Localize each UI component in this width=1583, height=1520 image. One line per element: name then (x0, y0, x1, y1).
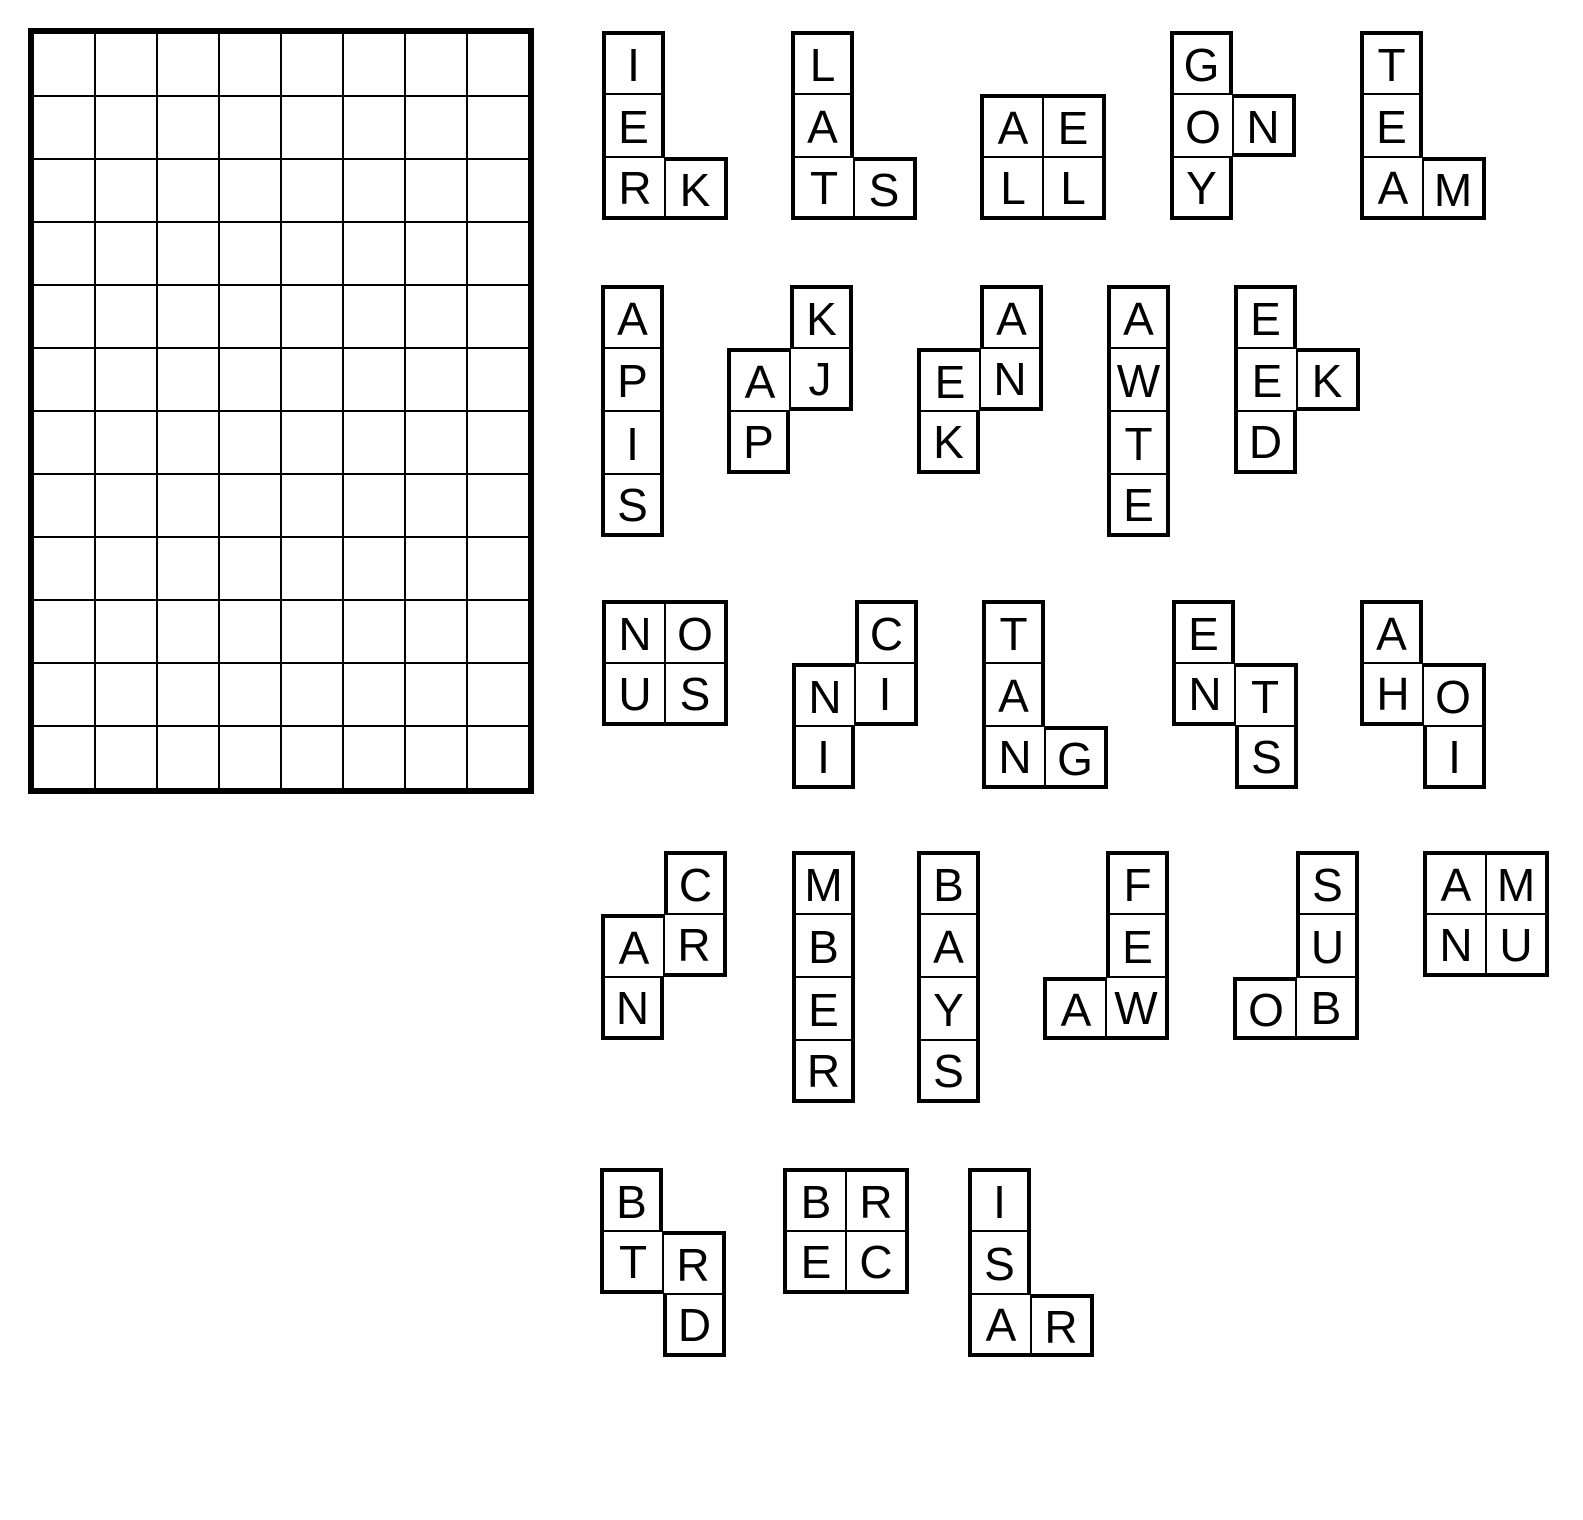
grid-cell[interactable] (467, 348, 529, 411)
piece-letter: G (1184, 42, 1220, 88)
grid-cell[interactable] (405, 96, 467, 159)
piece-feaw-cell[interactable]: A (1043, 977, 1106, 1040)
grid-cell[interactable] (467, 726, 529, 789)
piece-btrd-cell[interactable]: B (600, 1168, 663, 1231)
piece-letter: T (810, 165, 838, 211)
piece-letter: K (1312, 358, 1343, 404)
piece-letter: S (933, 1048, 964, 1094)
grid-cell[interactable] (281, 159, 343, 222)
piece-letter: E (801, 1239, 832, 1285)
grid-cell[interactable] (281, 726, 343, 789)
piece-letter: U (1499, 922, 1532, 968)
piece-btrd-cell[interactable]: T (600, 1231, 663, 1294)
grid-cell[interactable] (95, 411, 157, 474)
piece-letter: E (618, 104, 649, 150)
piece-isar-cell[interactable]: I (968, 1168, 1031, 1231)
piece-letter: B (1311, 985, 1342, 1031)
grid-cell[interactable] (281, 348, 343, 411)
piece-letter: S (617, 482, 648, 528)
piece-team-cell[interactable]: M (1423, 157, 1486, 220)
piece-eekd-cell[interactable]: D (1234, 411, 1297, 474)
piece-aell-cell[interactable]: L (1043, 157, 1106, 220)
piece-letter: N (808, 674, 841, 720)
grid-cell[interactable] (219, 285, 281, 348)
piece-letter: E (1058, 105, 1089, 151)
grid-cell[interactable] (157, 600, 219, 663)
grid-cell[interactable] (33, 222, 95, 285)
grid-cell[interactable] (33, 96, 95, 159)
grid-cell[interactable] (95, 222, 157, 285)
piece-letter: C (679, 862, 712, 908)
piece-letter: N (1188, 671, 1221, 717)
grid-cell[interactable] (33, 33, 95, 96)
piece-letter: P (617, 358, 648, 404)
piece-letter: E (1376, 104, 1407, 150)
piece-letter: I (817, 734, 830, 780)
piece-letter: R (1044, 1304, 1077, 1350)
piece-letter: O (1248, 987, 1284, 1033)
piece-letter: P (743, 419, 774, 465)
piece-btrd-cell[interactable]: D (663, 1294, 726, 1357)
piece-letter: N (1439, 922, 1472, 968)
grid-cell[interactable] (219, 411, 281, 474)
piece-letter: L (810, 42, 836, 88)
piece-letter: C (870, 611, 903, 657)
piece-letter: O (1435, 674, 1471, 720)
grid-cell[interactable] (157, 411, 219, 474)
grid-cell[interactable] (219, 537, 281, 600)
piece-aenk-cell[interactable]: A (980, 285, 1043, 348)
piece-eekd-cell[interactable]: K (1297, 348, 1360, 411)
grid-cell[interactable] (405, 600, 467, 663)
grid-cell[interactable] (95, 96, 157, 159)
piece-letter: U (1311, 924, 1344, 970)
piece-team-cell[interactable]: A (1360, 157, 1423, 220)
grid-cell[interactable] (343, 474, 405, 537)
piece-letter: E (1188, 611, 1219, 657)
piece-feaw-cell[interactable]: F (1106, 851, 1169, 914)
piece-kajp-cell[interactable]: P (727, 411, 790, 474)
piece-letter: K (933, 419, 964, 465)
piece-nous-cell[interactable]: S (665, 663, 728, 726)
piece-suob-cell[interactable]: S (1296, 851, 1359, 914)
piece-apis-cell[interactable]: P (601, 348, 664, 411)
piece-awte-cell[interactable]: A (1107, 285, 1170, 348)
grid-cell[interactable] (281, 600, 343, 663)
grid-cell[interactable] (33, 285, 95, 348)
piece-letter: R (618, 165, 651, 211)
piece-letter: E (1252, 358, 1283, 404)
piece-carn-cell[interactable]: C (664, 851, 727, 914)
piece-bays-cell[interactable]: Y (917, 977, 980, 1040)
grid-cell[interactable] (405, 474, 467, 537)
piece-letter: K (806, 296, 837, 342)
piece-lats-cell[interactable]: A (791, 94, 854, 157)
piece-letter: M (804, 862, 842, 908)
piece-aenk-cell[interactable]: E (917, 348, 980, 411)
piece-letter: L (1000, 165, 1026, 211)
piece-letter: J (809, 356, 832, 402)
grid-cell[interactable] (219, 348, 281, 411)
grid-cell[interactable] (467, 663, 529, 726)
grid-cell[interactable] (95, 537, 157, 600)
piece-apis-cell[interactable]: S (601, 474, 664, 537)
piece-ents-cell[interactable]: E (1172, 600, 1235, 663)
grid-cell[interactable] (343, 663, 405, 726)
piece-carn-cell[interactable]: R (664, 914, 727, 977)
grid-cell[interactable] (281, 222, 343, 285)
piece-letter: A (745, 359, 776, 405)
piece-letter: A (933, 924, 964, 970)
grid-cell[interactable] (95, 726, 157, 789)
grid-cell[interactable] (467, 222, 529, 285)
piece-letter: T (1377, 42, 1405, 88)
piece-cnii-cell[interactable]: I (792, 726, 855, 789)
piece-letter: M (1434, 167, 1472, 213)
piece-isar-cell[interactable]: R (1031, 1294, 1094, 1357)
grid-cell[interactable] (281, 663, 343, 726)
piece-gony-cell[interactable]: O (1170, 94, 1233, 157)
piece-awte-cell[interactable]: W (1107, 348, 1170, 411)
piece-letter: A (1123, 296, 1154, 342)
piece-brec-cell[interactable]: C (846, 1231, 909, 1294)
grid-cell[interactable] (467, 159, 529, 222)
grid-cell[interactable] (219, 474, 281, 537)
piece-bays-cell[interactable]: A (917, 914, 980, 977)
piece-letter: A (619, 925, 650, 971)
grid-cell[interactable] (281, 33, 343, 96)
grid-cell[interactable] (405, 663, 467, 726)
piece-letter: G (1057, 736, 1093, 782)
grid-cell[interactable] (467, 537, 529, 600)
grid-cell[interactable] (219, 159, 281, 222)
piece-letter: E (1122, 924, 1153, 970)
piece-btrd-cell[interactable]: R (663, 1231, 726, 1294)
piece-letter: R (677, 922, 710, 968)
piece-lats-cell[interactable]: L (791, 31, 854, 94)
piece-nous-cell[interactable]: N (602, 600, 665, 663)
grid-cell[interactable] (343, 537, 405, 600)
piece-suob-cell[interactable]: B (1296, 977, 1359, 1040)
piece-letter: A (998, 673, 1029, 719)
grid-cell[interactable] (157, 474, 219, 537)
grid-cell[interactable] (157, 537, 219, 600)
piece-tang-cell[interactable]: A (982, 663, 1045, 726)
piece-letter: F (1123, 862, 1151, 908)
piece-gony-cell[interactable]: G (1170, 31, 1233, 94)
piece-letter: A (1061, 987, 1092, 1033)
piece-letter: T (619, 1239, 647, 1285)
piece-mber-cell[interactable]: R (792, 1040, 855, 1103)
piece-letter: N (618, 611, 651, 657)
piece-brec-cell[interactable]: R (846, 1168, 909, 1231)
piece-letter: L (1060, 165, 1086, 211)
grid-cell[interactable] (157, 726, 219, 789)
grid-cell[interactable] (343, 348, 405, 411)
grid-cell[interactable] (281, 474, 343, 537)
piece-letter: A (996, 296, 1027, 342)
piece-letter: R (859, 1179, 892, 1225)
grid-cell[interactable] (405, 537, 467, 600)
grid-cell[interactable] (33, 537, 95, 600)
piece-letter: D (678, 1302, 711, 1348)
piece-brec-cell[interactable]: B (783, 1168, 846, 1231)
piece-letter: W (1114, 985, 1157, 1031)
piece-lats-cell[interactable]: S (854, 157, 917, 220)
grid-cell[interactable] (467, 600, 529, 663)
piece-letter: N (616, 985, 649, 1031)
piece-letter: M (1497, 862, 1535, 908)
piece-nous-cell[interactable]: O (665, 600, 728, 663)
grid-cell[interactable] (33, 726, 95, 789)
grid-cell[interactable] (281, 411, 343, 474)
piece-apis-cell[interactable]: A (601, 285, 664, 348)
piece-cnii-cell[interactable]: N (792, 663, 855, 726)
piece-brec-cell[interactable]: E (783, 1231, 846, 1294)
piece-kajp-cell[interactable]: K (790, 285, 853, 348)
piece-letter: H (1376, 671, 1409, 717)
grid-cell[interactable] (343, 600, 405, 663)
piece-ahoi-cell[interactable]: I (1423, 726, 1486, 789)
grid-cell[interactable] (405, 411, 467, 474)
piece-ents-cell[interactable]: N (1172, 663, 1235, 726)
piece-letter: S (1312, 862, 1343, 908)
grid-cell[interactable] (343, 33, 405, 96)
piece-aell-cell[interactable]: L (980, 157, 1043, 220)
piece-letter: R (807, 1048, 840, 1094)
grid-cell[interactable] (33, 663, 95, 726)
grid-cell[interactable] (95, 600, 157, 663)
piece-carn-cell[interactable]: N (601, 977, 664, 1040)
piece-ierk-cell[interactable]: R (602, 157, 665, 220)
grid-cell[interactable] (219, 663, 281, 726)
piece-letter: T (1251, 674, 1279, 720)
grid-cell[interactable] (157, 285, 219, 348)
piece-letter: A (1378, 165, 1409, 211)
grid-cell[interactable] (343, 411, 405, 474)
piece-ents-cell[interactable]: T (1235, 663, 1298, 726)
grid-cell[interactable] (157, 348, 219, 411)
piece-team-cell[interactable]: E (1360, 94, 1423, 157)
piece-letter: N (993, 356, 1026, 402)
piece-letter: B (616, 1179, 647, 1225)
piece-letter: O (677, 611, 713, 657)
piece-letter: I (626, 421, 639, 467)
piece-letter: W (1117, 358, 1160, 404)
piece-letter: T (1124, 421, 1152, 467)
grid-cell[interactable] (467, 285, 529, 348)
piece-ents-cell[interactable]: S (1235, 726, 1298, 789)
piece-letter: O (1185, 104, 1221, 150)
piece-letter: D (1249, 419, 1282, 465)
piece-letter: S (1251, 734, 1282, 780)
piece-letter: S (680, 671, 711, 717)
piece-letter: Y (1186, 165, 1217, 211)
piece-ahoi-cell[interactable]: O (1423, 663, 1486, 726)
piece-tang-cell[interactable]: T (982, 600, 1045, 663)
piece-apis-cell[interactable]: I (601, 411, 664, 474)
piece-letter: S (869, 167, 900, 213)
piece-letter: A (807, 104, 838, 150)
grid-cell[interactable] (405, 222, 467, 285)
grid-cell[interactable] (467, 411, 529, 474)
piece-kajp-cell[interactable]: J (790, 348, 853, 411)
piece-letter: A (998, 105, 1029, 151)
piece-amnu-cell[interactable]: N (1423, 914, 1486, 977)
answer-grid[interactable] (28, 28, 534, 794)
grid-cell[interactable] (219, 600, 281, 663)
piece-ahoi-cell[interactable]: A (1360, 600, 1423, 663)
grid-cell[interactable] (467, 33, 529, 96)
grid-cell[interactable] (157, 159, 219, 222)
grid-cell[interactable] (157, 663, 219, 726)
grid-cell[interactable] (405, 285, 467, 348)
piece-letter: I (627, 42, 640, 88)
piece-amnu-cell[interactable]: A (1423, 851, 1486, 914)
piece-aell-cell[interactable]: A (980, 94, 1043, 157)
piece-letter: I (879, 671, 892, 717)
piece-letter: A (986, 1302, 1017, 1348)
piece-carn-cell[interactable]: A (601, 914, 664, 977)
piece-eekd-cell[interactable]: E (1234, 348, 1297, 411)
grid-cell[interactable] (343, 285, 405, 348)
grid-cell[interactable] (281, 537, 343, 600)
piece-aell-cell[interactable]: E (1043, 94, 1106, 157)
piece-letter: B (808, 924, 839, 970)
piece-awte-cell[interactable]: T (1107, 411, 1170, 474)
grid-cell[interactable] (95, 348, 157, 411)
grid-cell[interactable] (467, 474, 529, 537)
grid-cell[interactable] (281, 96, 343, 159)
piece-mber-cell[interactable]: E (792, 977, 855, 1040)
piece-letter: N (998, 734, 1031, 780)
grid-cell[interactable] (405, 33, 467, 96)
piece-cnii-cell[interactable]: I (855, 663, 918, 726)
grid-cell[interactable] (405, 348, 467, 411)
piece-kajp-cell[interactable]: A (727, 348, 790, 411)
piece-letter: R (676, 1242, 709, 1288)
grid-cell[interactable] (343, 726, 405, 789)
piece-mber-cell[interactable]: M (792, 851, 855, 914)
grid-cell[interactable] (95, 474, 157, 537)
piece-nous-cell[interactable]: U (602, 663, 665, 726)
piece-feaw-cell[interactable]: W (1106, 977, 1169, 1040)
piece-letter: E (935, 359, 966, 405)
piece-suob-cell[interactable]: U (1296, 914, 1359, 977)
grid-cell[interactable] (33, 600, 95, 663)
piece-letter: T (999, 611, 1027, 657)
piece-letter: A (1376, 611, 1407, 657)
grid-cell[interactable] (219, 726, 281, 789)
piece-letter: I (993, 1179, 1006, 1225)
piece-gony-cell[interactable]: N (1233, 94, 1296, 157)
piece-letter: A (1441, 862, 1472, 908)
piece-gony-cell[interactable]: Y (1170, 157, 1233, 220)
piece-ierk-cell[interactable]: E (602, 94, 665, 157)
piece-tang-cell[interactable]: G (1045, 726, 1108, 789)
piece-letter: I (1448, 734, 1461, 780)
piece-letter: Y (933, 987, 964, 1033)
piece-ierk-cell[interactable]: K (665, 157, 728, 220)
grid-cell[interactable] (219, 33, 281, 96)
piece-letter: E (1250, 296, 1281, 342)
grid-cell[interactable] (33, 159, 95, 222)
piece-bays-cell[interactable]: S (917, 1040, 980, 1103)
piece-amnu-cell[interactable]: M (1486, 851, 1549, 914)
grid-cell[interactable] (405, 159, 467, 222)
piece-letter: B (801, 1179, 832, 1225)
grid-cell[interactable] (95, 33, 157, 96)
piece-letter: S (984, 1241, 1015, 1287)
piece-feaw-cell[interactable]: E (1106, 914, 1169, 977)
piece-letter: B (933, 862, 964, 908)
piece-amnu-cell[interactable]: U (1486, 914, 1549, 977)
grid-cell[interactable] (95, 159, 157, 222)
grid-cell[interactable] (219, 222, 281, 285)
piece-ahoi-cell[interactable]: H (1360, 663, 1423, 726)
grid-cell[interactable] (343, 222, 405, 285)
piece-awte-cell[interactable]: E (1107, 474, 1170, 537)
piece-lats-cell[interactable]: T (791, 157, 854, 220)
piece-letter: U (618, 671, 651, 717)
grid-cell[interactable] (281, 285, 343, 348)
piece-eekd-cell[interactable]: E (1234, 285, 1297, 348)
piece-letter: C (859, 1239, 892, 1285)
piece-letter: E (1123, 482, 1154, 528)
grid-cell[interactable] (33, 348, 95, 411)
grid-cell[interactable] (343, 159, 405, 222)
piece-ierk-cell[interactable]: I (602, 31, 665, 94)
piece-isar-cell[interactable]: A (968, 1294, 1031, 1357)
grid-cell[interactable] (157, 96, 219, 159)
piece-letter: K (680, 167, 711, 213)
piece-suob-cell[interactable]: O (1233, 977, 1296, 1040)
grid-cell[interactable] (219, 96, 281, 159)
grid-cell[interactable] (33, 411, 95, 474)
piece-aenk-cell[interactable]: N (980, 348, 1043, 411)
grid-cell[interactable] (343, 96, 405, 159)
piece-bays-cell[interactable]: B (917, 851, 980, 914)
grid-cell[interactable] (157, 33, 219, 96)
piece-letter: E (808, 987, 839, 1033)
piece-tang-cell[interactable]: N (982, 726, 1045, 789)
grid-cell[interactable] (33, 474, 95, 537)
grid-cell[interactable] (405, 726, 467, 789)
piece-mber-cell[interactable]: B (792, 914, 855, 977)
puzzle-board: IERKLATSAELLGONYTEAMAPISKAJPAENKAWTEEEKD… (0, 0, 1583, 1520)
grid-cell[interactable] (95, 663, 157, 726)
piece-letter: N (1246, 104, 1279, 150)
grid-cell[interactable] (157, 222, 219, 285)
grid-cell[interactable] (95, 285, 157, 348)
piece-aenk-cell[interactable]: K (917, 411, 980, 474)
grid-cell[interactable] (467, 96, 529, 159)
piece-letter: A (617, 296, 648, 342)
piece-isar-cell[interactable]: S (968, 1231, 1031, 1294)
piece-team-cell[interactable]: T (1360, 31, 1423, 94)
piece-cnii-cell[interactable]: C (855, 600, 918, 663)
